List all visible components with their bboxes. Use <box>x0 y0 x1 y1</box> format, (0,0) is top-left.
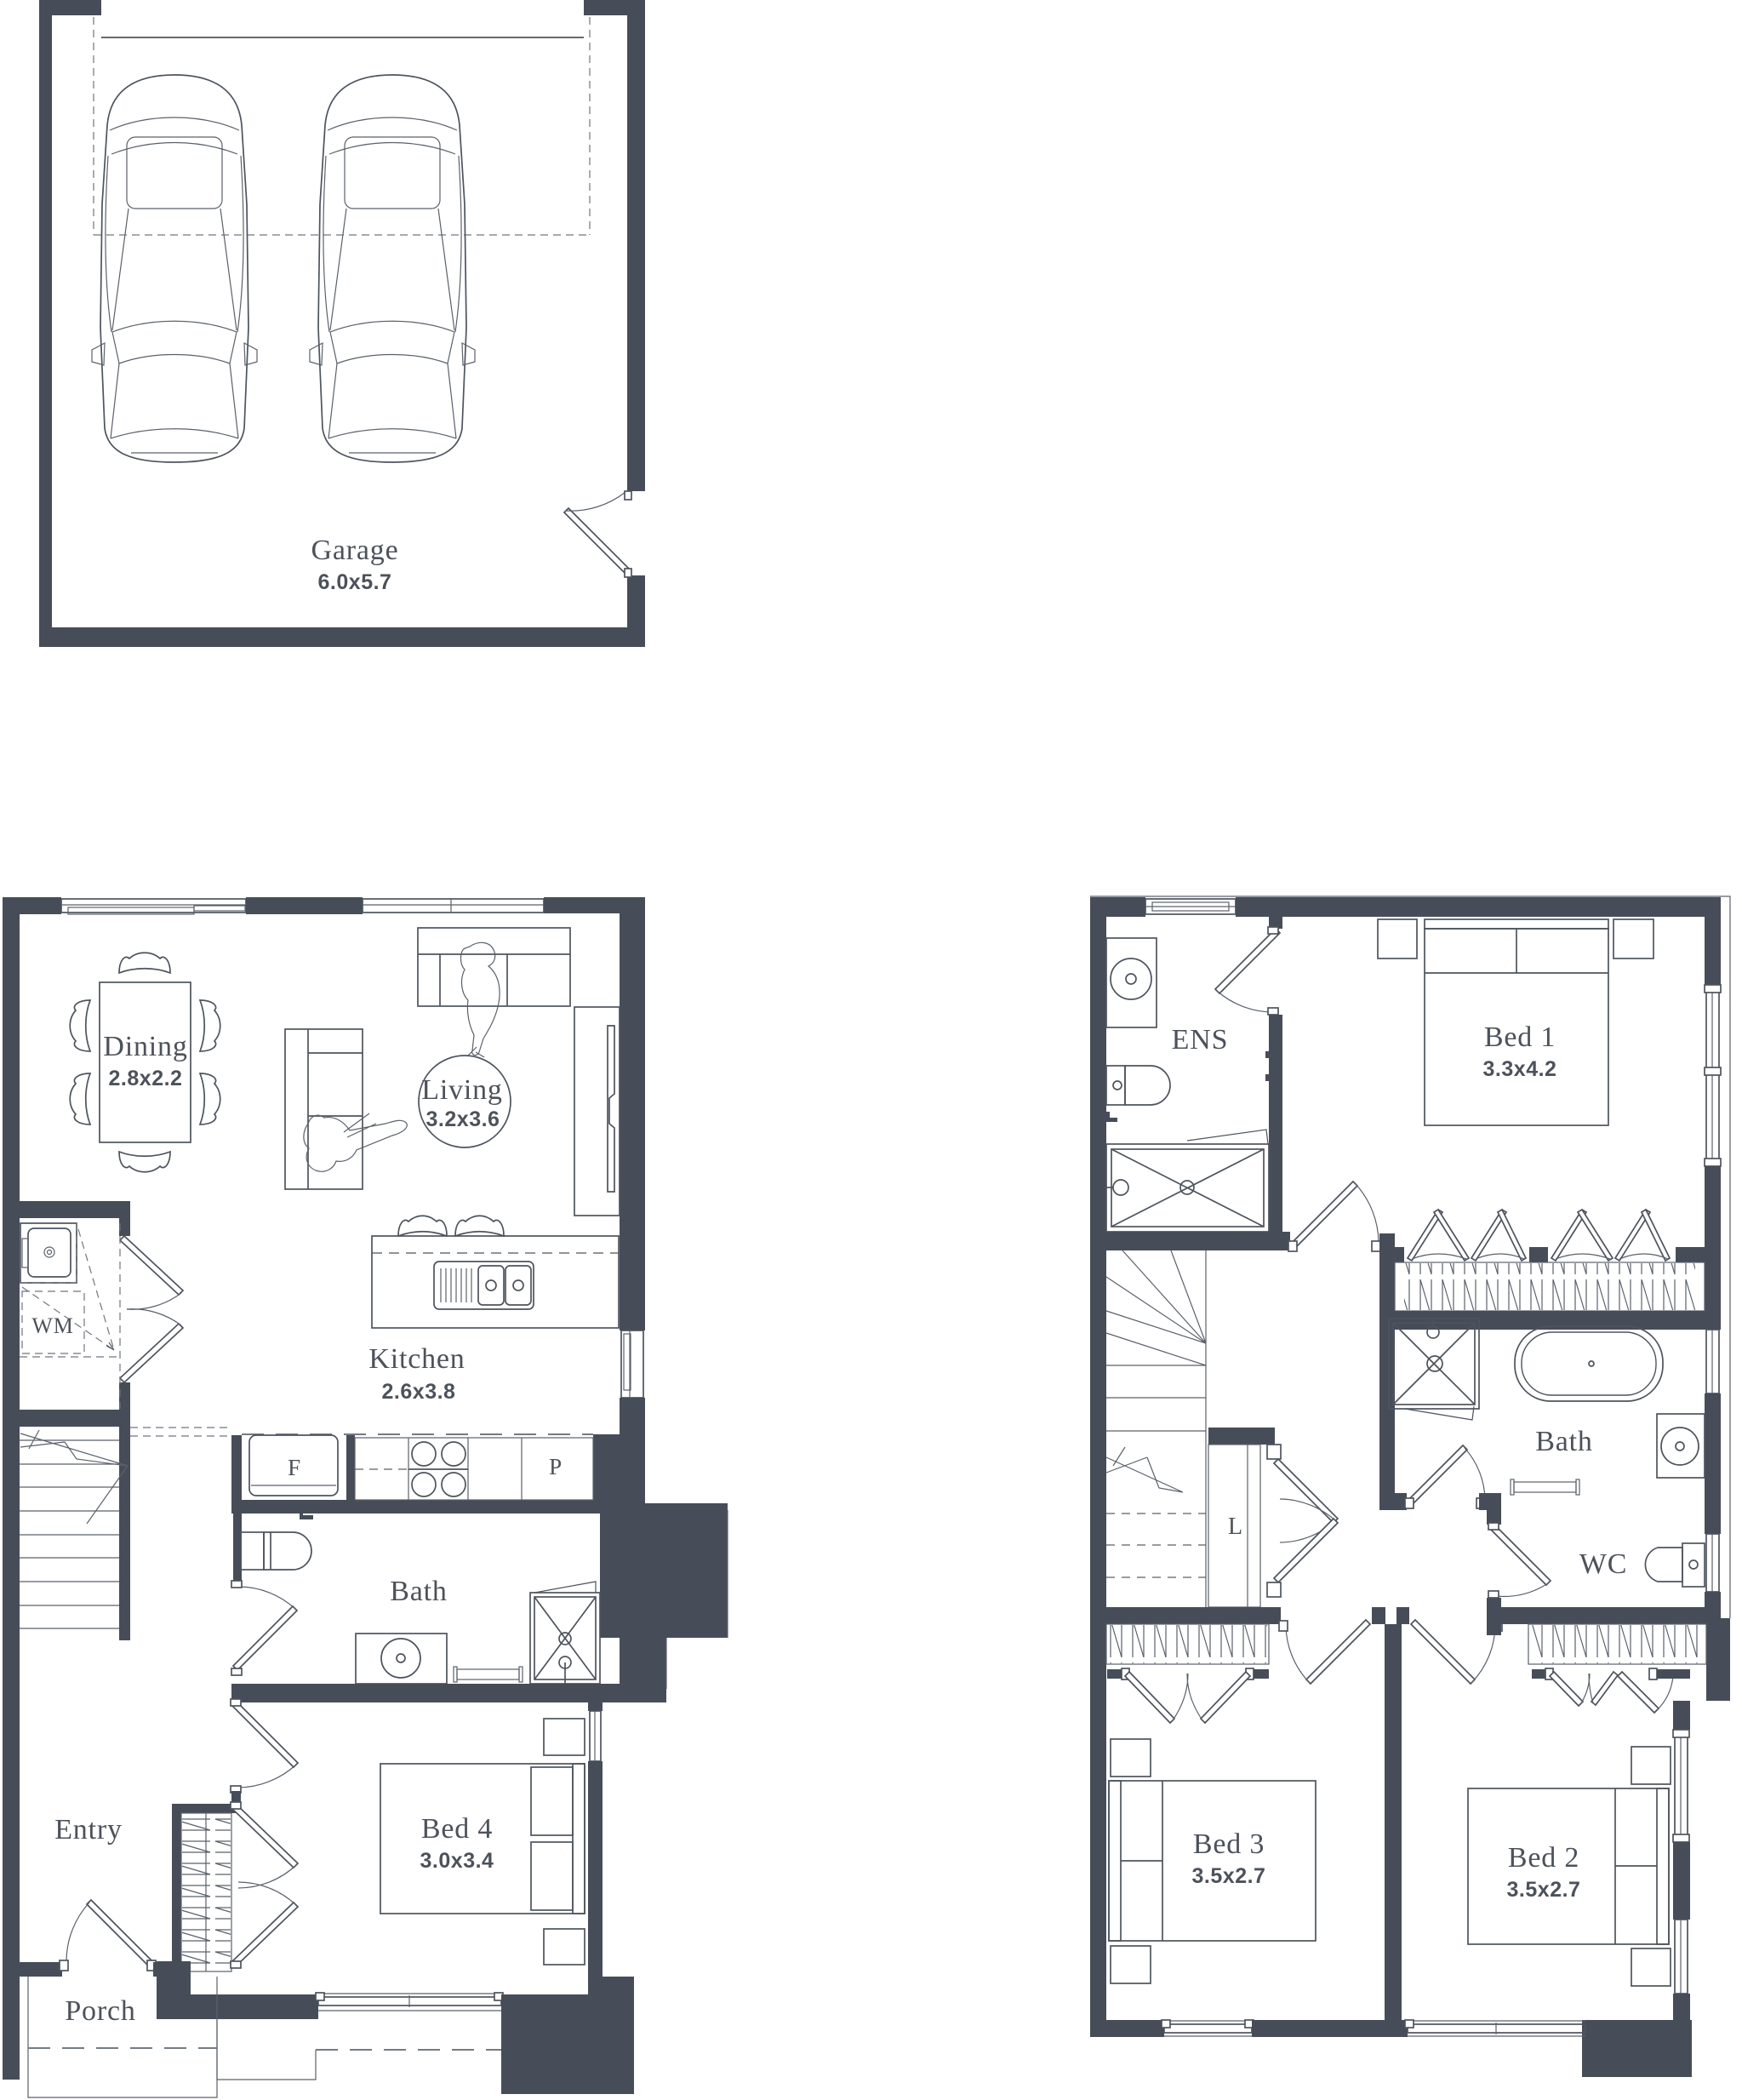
svg-text:L: L <box>1228 1513 1243 1540</box>
svg-text:Bed 1: Bed 1 <box>1484 1021 1556 1053</box>
svg-text:Bath: Bath <box>390 1576 447 1607</box>
svg-text:WC: WC <box>1579 1548 1627 1580</box>
svg-text:6.0x5.7: 6.0x5.7 <box>318 570 392 594</box>
svg-text:2.6x3.8: 2.6x3.8 <box>382 1380 456 1404</box>
svg-text:ENS: ENS <box>1172 1024 1229 1056</box>
svg-text:3.3x4.2: 3.3x4.2 <box>1483 1057 1557 1081</box>
svg-text:Kitchen: Kitchen <box>368 1343 465 1375</box>
svg-text:2.8x2.2: 2.8x2.2 <box>109 1067 183 1090</box>
svg-text:Bed 2: Bed 2 <box>1508 1842 1579 1874</box>
svg-text:P: P <box>549 1454 563 1479</box>
svg-text:3.5x2.7: 3.5x2.7 <box>1192 1864 1266 1888</box>
svg-text:3.5x2.7: 3.5x2.7 <box>1507 1878 1581 1902</box>
svg-text:3.2x3.6: 3.2x3.6 <box>426 1107 500 1131</box>
svg-text:Garage: Garage <box>311 535 399 566</box>
svg-text:Bed 3: Bed 3 <box>1193 1828 1265 1860</box>
svg-text:Bed 4: Bed 4 <box>421 1813 493 1845</box>
svg-text:WM: WM <box>31 1313 73 1338</box>
svg-text:Entry: Entry <box>54 1814 123 1845</box>
svg-text:Living: Living <box>421 1074 502 1106</box>
svg-text:Dining: Dining <box>103 1031 187 1062</box>
svg-text:3.0x3.4: 3.0x3.4 <box>420 1849 494 1873</box>
svg-text:F: F <box>288 1455 301 1480</box>
svg-text:Bath: Bath <box>1535 1426 1592 1457</box>
svg-text:Porch: Porch <box>65 1995 135 2027</box>
